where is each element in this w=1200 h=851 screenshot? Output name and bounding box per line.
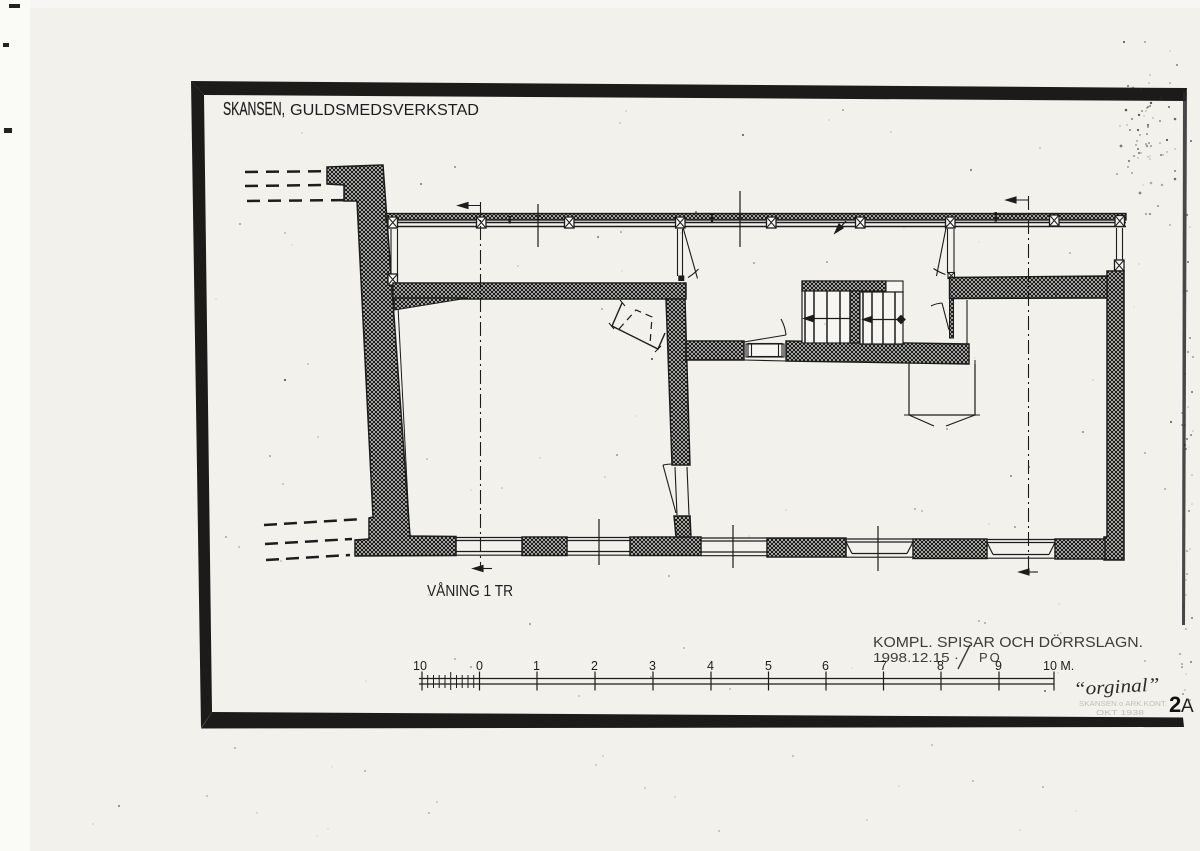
svg-text:SKANSEN,: SKANSEN, <box>223 98 285 119</box>
svg-text:VÅNING 1 TR: VÅNING 1 TR <box>427 581 513 600</box>
svg-text:1: 1 <box>533 659 540 673</box>
svg-text:8: 8 <box>937 659 944 673</box>
svg-text:5: 5 <box>765 659 772 673</box>
svg-text:0: 0 <box>476 659 483 673</box>
svg-text:10: 10 <box>413 659 427 673</box>
svg-text:A: A <box>1181 696 1194 717</box>
svg-text:GULDSMEDSVERKSTAD: GULDSMEDSVERKSTAD <box>290 102 479 119</box>
svg-text:OKT 1938: OKT 1938 <box>1096 708 1144 717</box>
svg-text:KOMPL. SPISAR OCH DÖRRSLAGN: KOMPL. SPISAR OCH DÖRRSLAGN. <box>873 633 1143 651</box>
svg-text:4: 4 <box>707 659 714 673</box>
svg-text:“orginal”: “orginal” <box>1073 675 1160 700</box>
svg-text:9: 9 <box>995 659 1002 673</box>
svg-text:SKANSEN o ARK.KONT.: SKANSEN o ARK.KONT. <box>1079 699 1167 708</box>
svg-text:2: 2 <box>591 659 598 673</box>
svg-text:3: 3 <box>649 659 656 673</box>
svg-text:10 M.: 10 M. <box>1043 659 1074 673</box>
svg-text:6: 6 <box>822 659 829 673</box>
svg-text:7: 7 <box>880 659 887 673</box>
svg-text:2: 2 <box>1169 692 1181 717</box>
